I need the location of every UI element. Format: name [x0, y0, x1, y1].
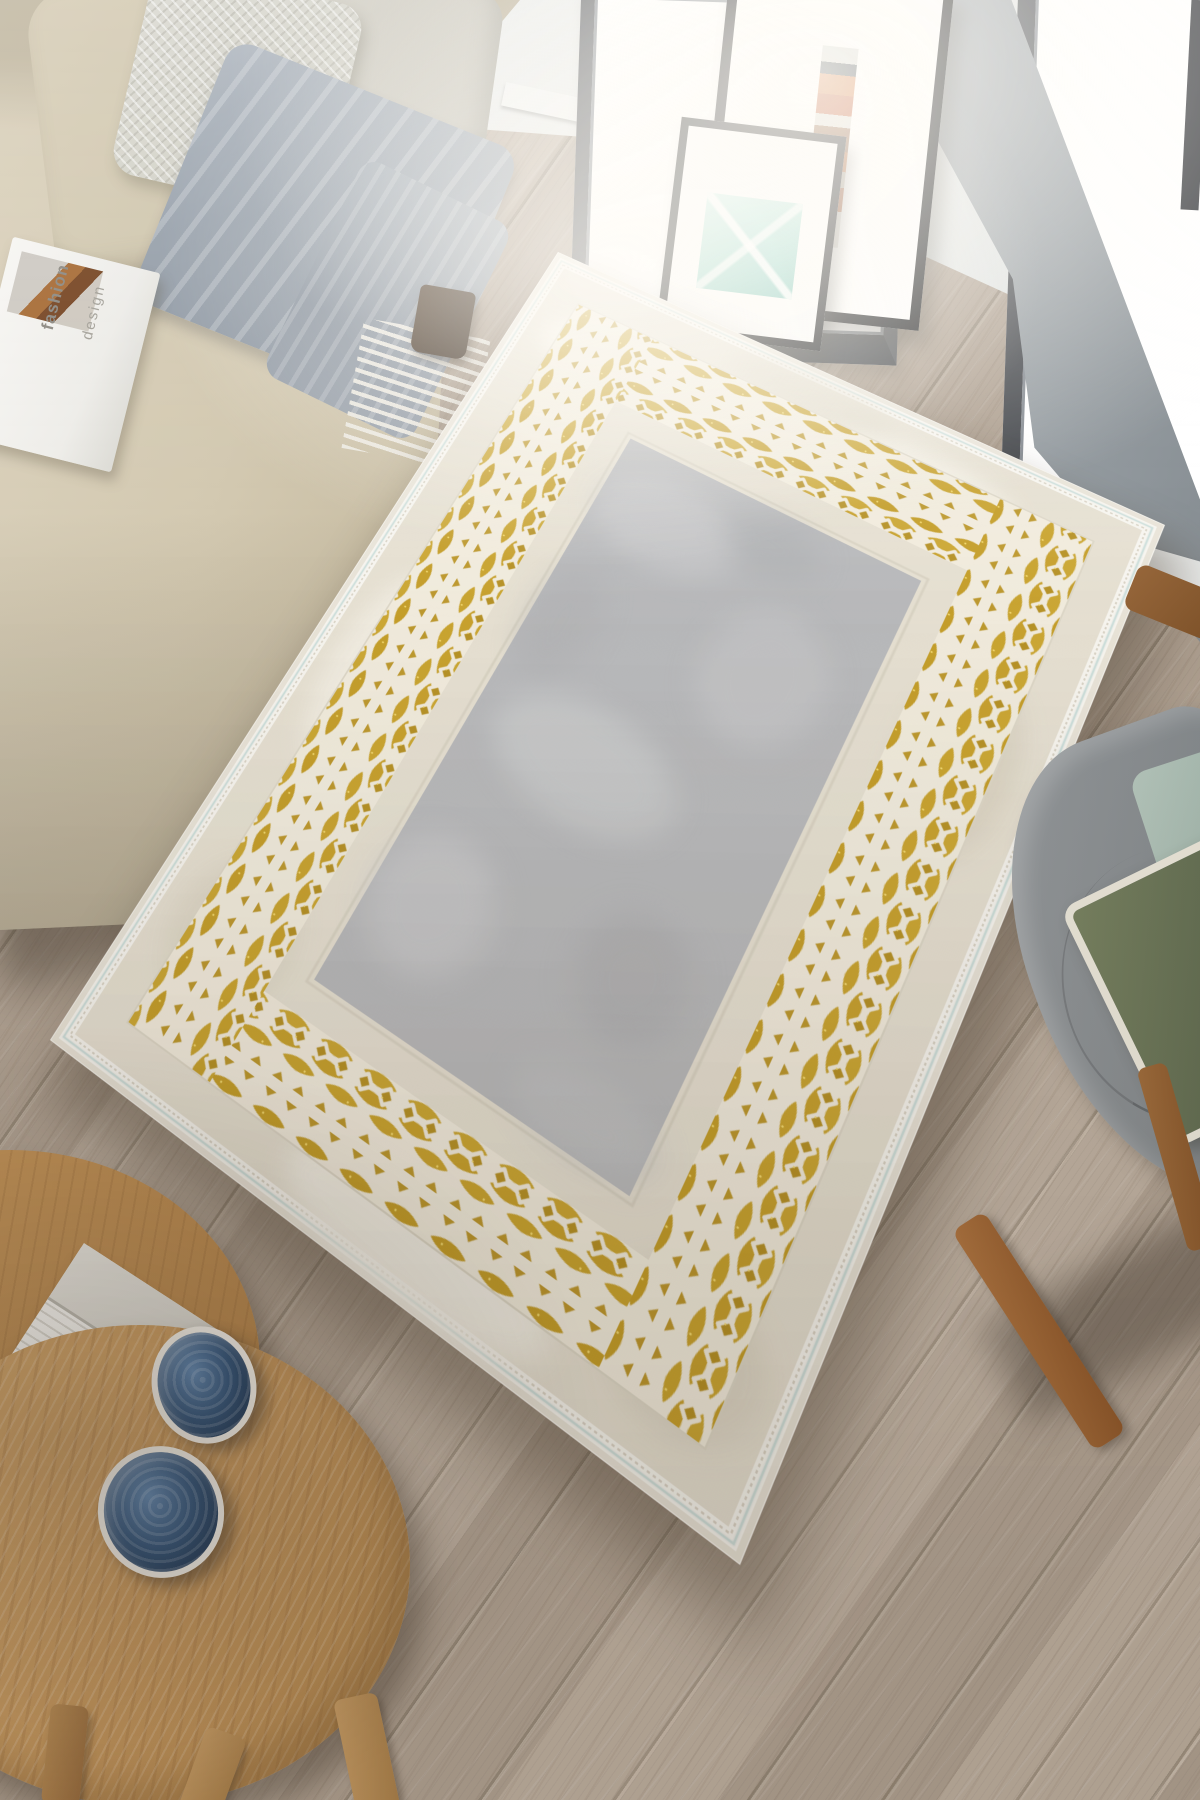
teal-artwork: [696, 192, 803, 299]
living-room-photo: fashion design: [0, 0, 1200, 1800]
sofa-wooden-foot: [410, 284, 477, 361]
